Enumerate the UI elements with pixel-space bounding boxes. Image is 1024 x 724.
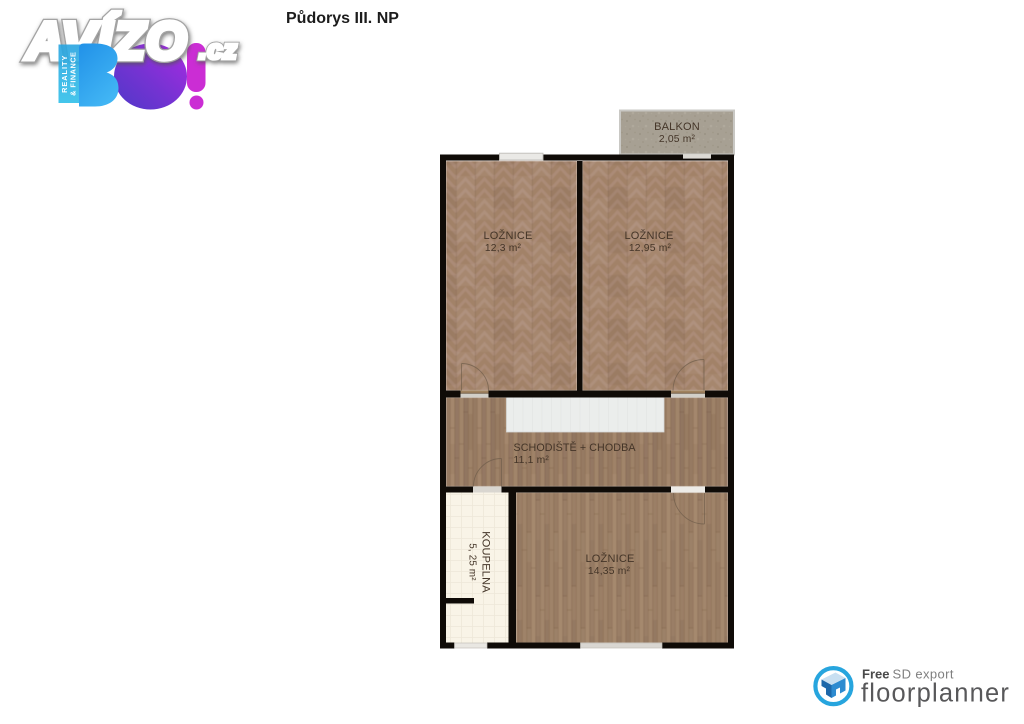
svg-text:floorplanner: floorplanner — [861, 680, 1010, 708]
svg-text:.cz: .cz — [199, 35, 237, 65]
svg-text:& FINANCE: & FINANCE — [68, 52, 77, 96]
